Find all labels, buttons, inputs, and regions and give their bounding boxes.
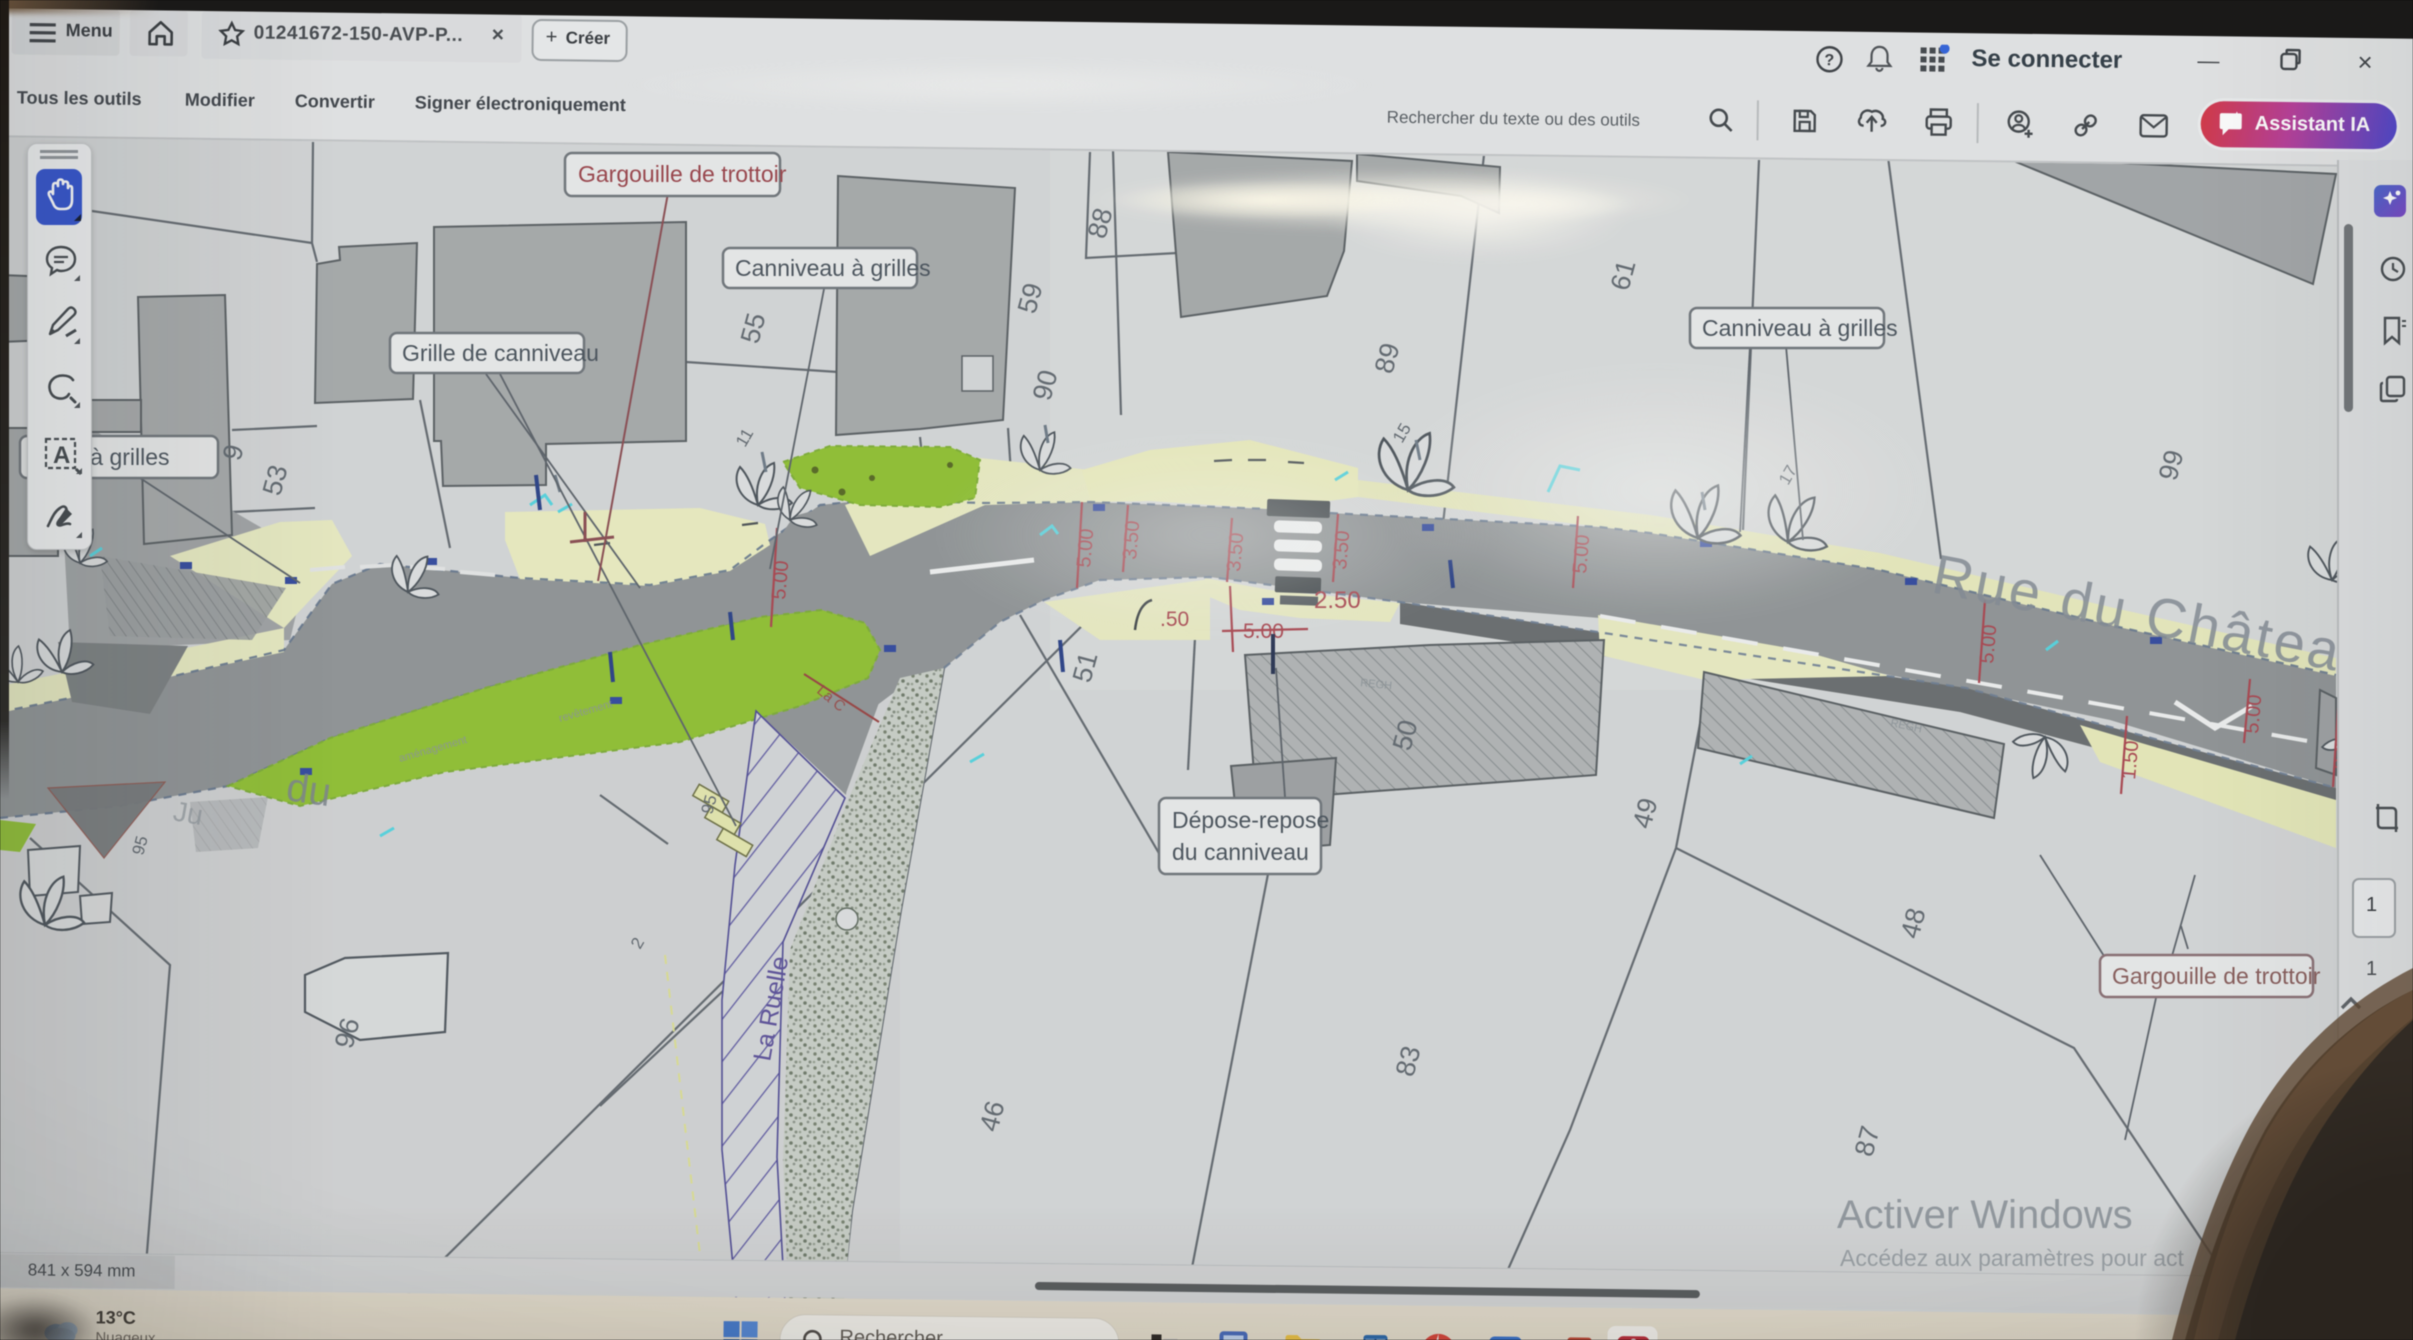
svg-text:Dépose-repose: Dépose-repose <box>1172 807 1329 833</box>
svg-text:Canniveau à grilles: Canniveau à grilles <box>1702 315 1898 341</box>
svg-text:Grille de canniveau: Grille de canniveau <box>402 340 599 366</box>
svg-text:A: A <box>53 442 70 469</box>
svg-text:du: du <box>284 765 334 815</box>
svg-text:Ju: Ju <box>171 795 206 831</box>
svg-text:5.00: 5.00 <box>2241 694 2266 735</box>
svg-text:5.00: 5.00 <box>1976 624 2001 665</box>
svg-text:1.50: 1.50 <box>2118 740 2143 781</box>
svg-text:5.00: 5.00 <box>768 560 793 601</box>
svg-text:du canniveau: du canniveau <box>1172 839 1309 865</box>
svg-text:Gargouille de trottoir: Gargouille de trottoir <box>578 161 787 187</box>
svg-text:?: ? <box>1824 52 1834 69</box>
svg-text:Canniveau à grilles: Canniveau à grilles <box>735 255 931 281</box>
